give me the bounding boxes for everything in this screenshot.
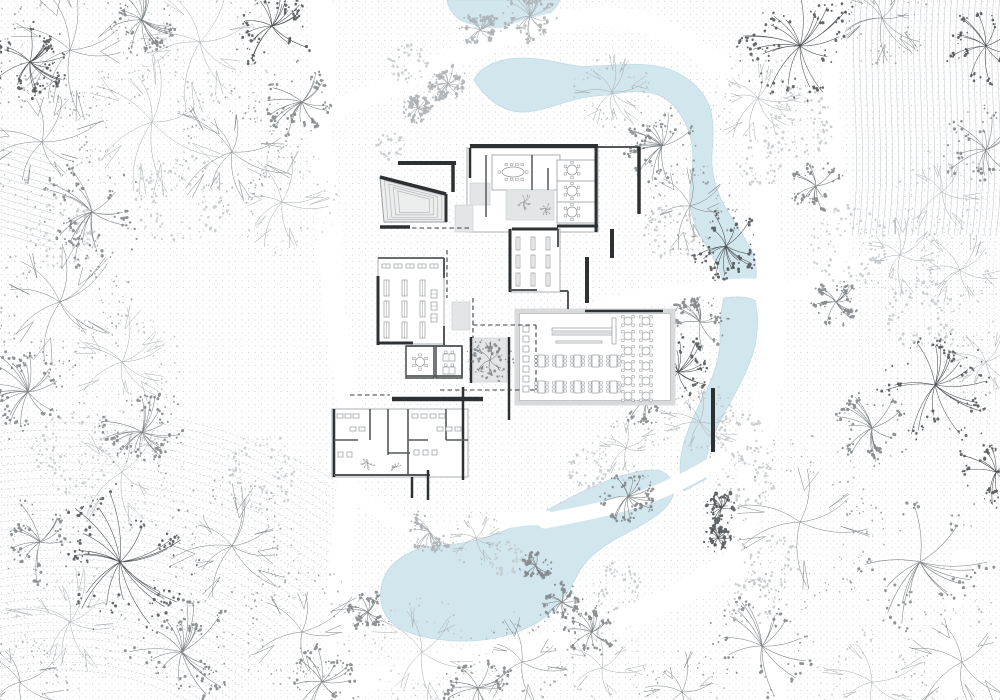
round-table [416, 358, 425, 367]
courtyard [470, 183, 490, 205]
room [332, 409, 468, 477]
round-table [567, 186, 577, 196]
conference-table [502, 167, 524, 177]
courtyard [506, 190, 554, 220]
courtyard [452, 302, 470, 330]
round-table [567, 207, 577, 217]
site-plan [0, 0, 1000, 700]
round-table [567, 165, 577, 175]
site-plan-canvas [0, 0, 1000, 700]
